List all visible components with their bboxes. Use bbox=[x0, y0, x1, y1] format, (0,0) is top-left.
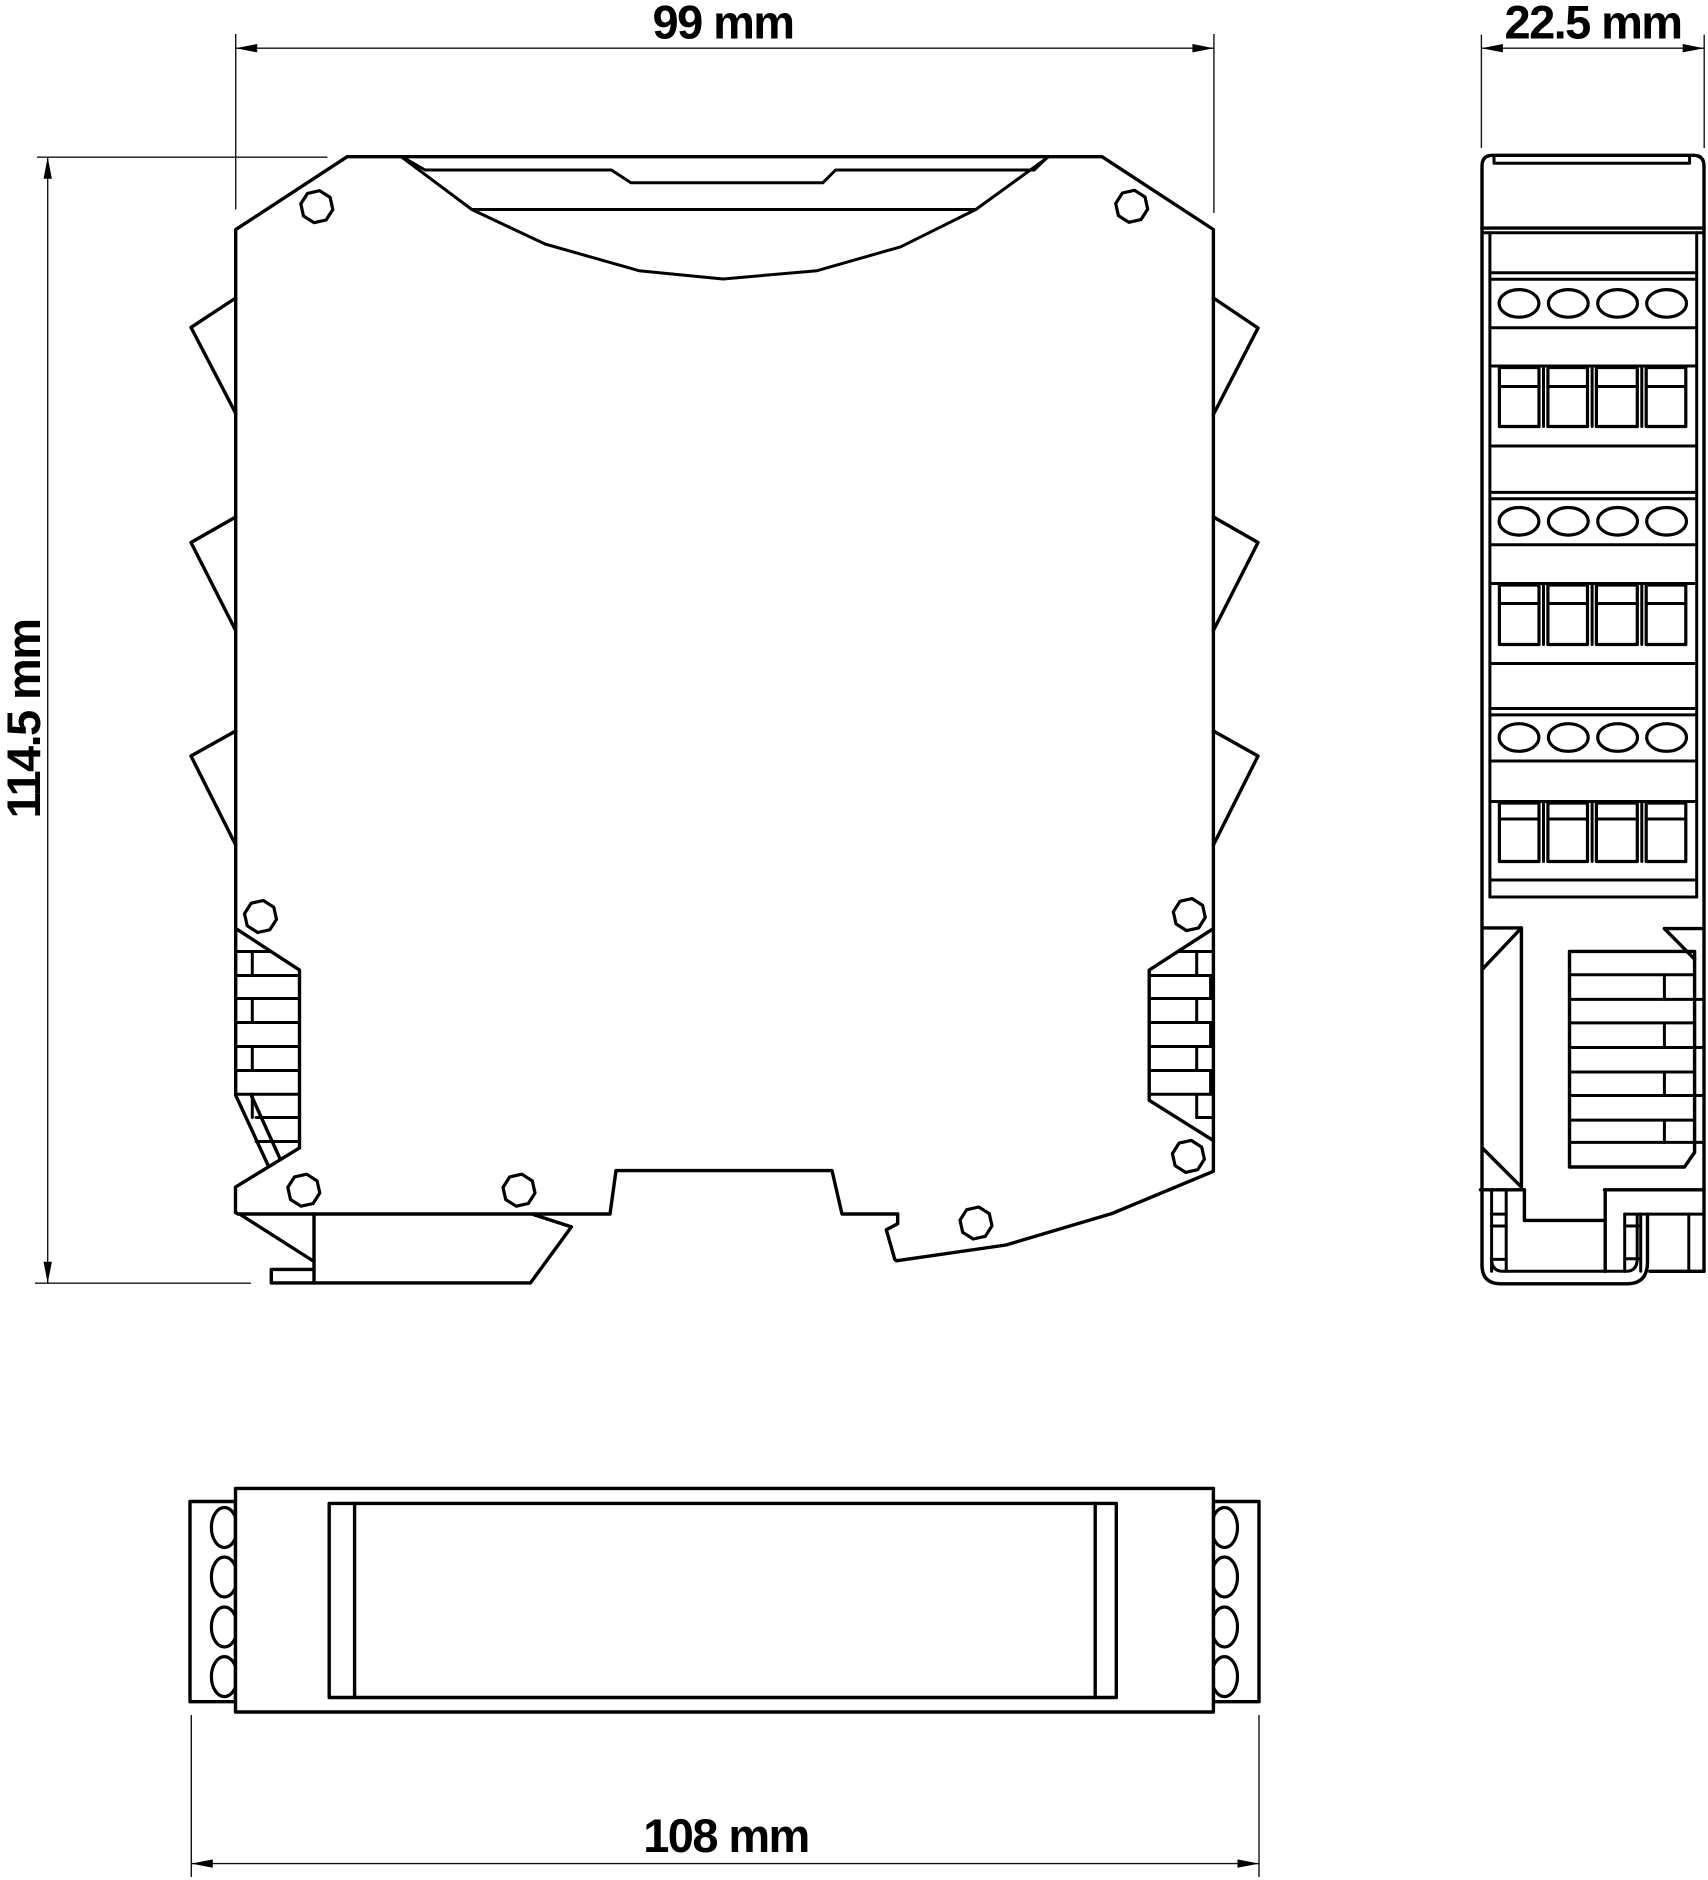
svg-text:99 mm: 99 mm bbox=[653, 0, 794, 49]
svg-text:108 mm: 108 mm bbox=[643, 1809, 808, 1862]
svg-text:22.5 mm: 22.5 mm bbox=[1505, 0, 1682, 49]
svg-text:114.5 mm: 114.5 mm bbox=[0, 620, 50, 819]
